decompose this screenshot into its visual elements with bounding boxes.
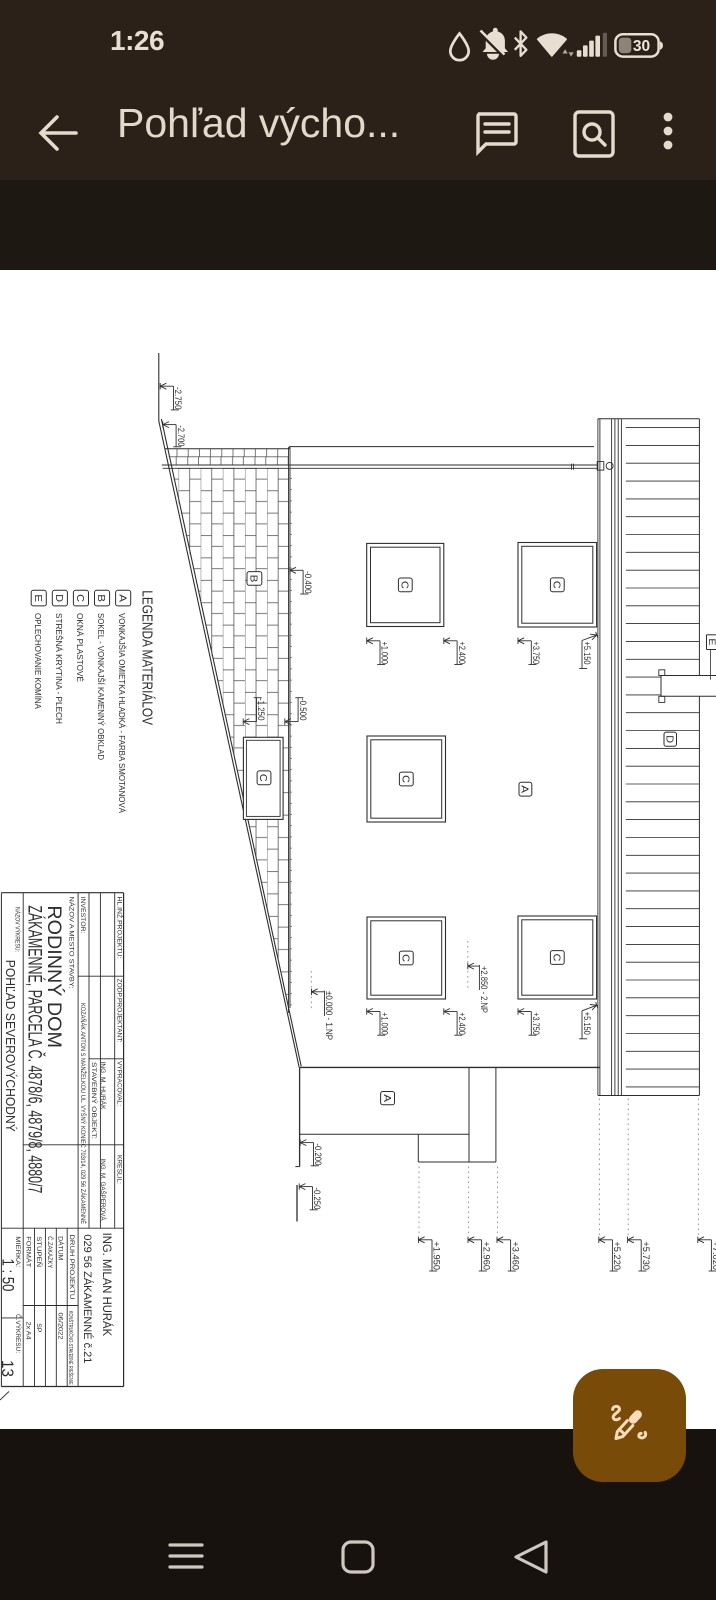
svg-text:30: 30 xyxy=(633,38,650,55)
